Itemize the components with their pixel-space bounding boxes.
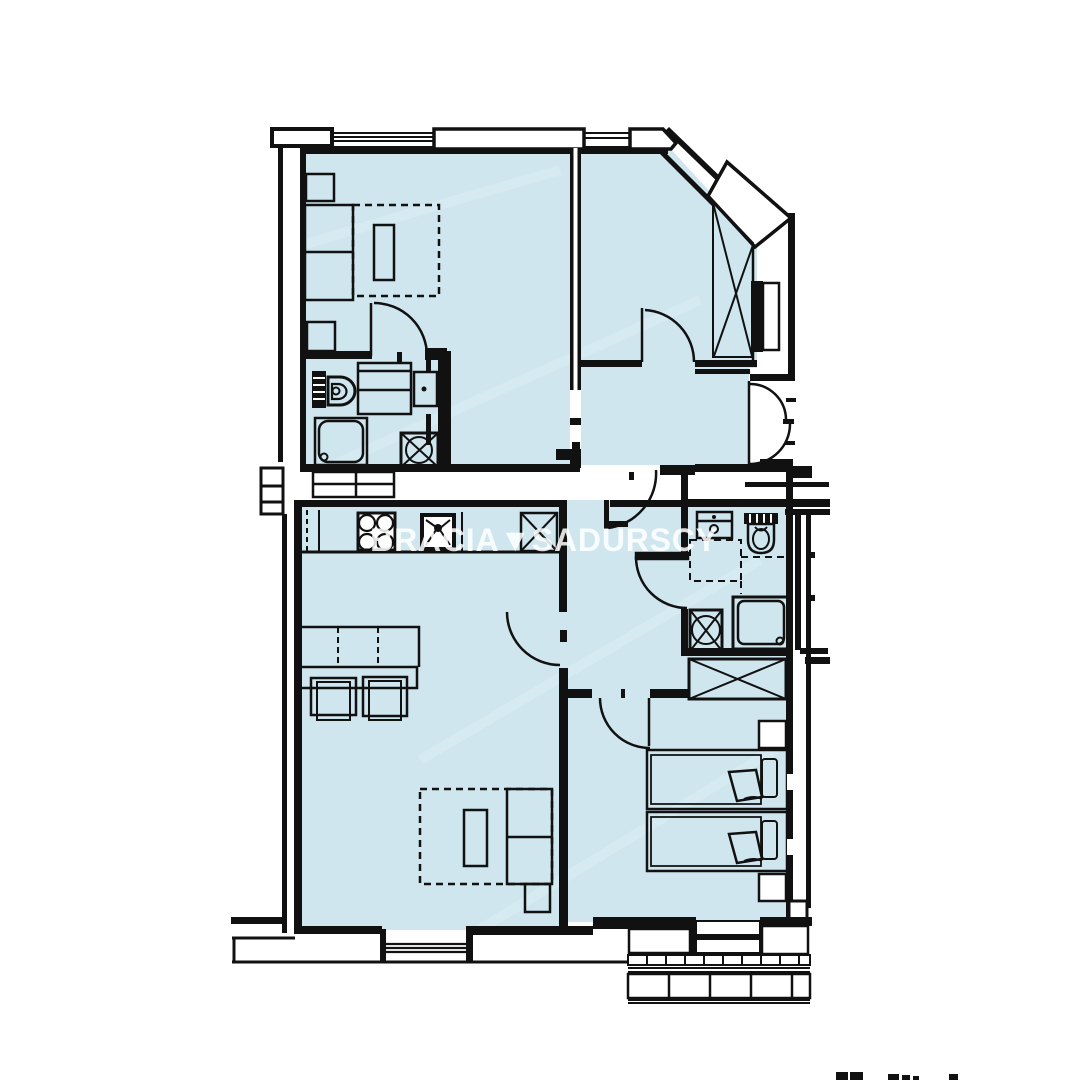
- svg-text:BRACIA▼SADURSCY: BRACIA▼SADURSCY: [370, 522, 718, 558]
